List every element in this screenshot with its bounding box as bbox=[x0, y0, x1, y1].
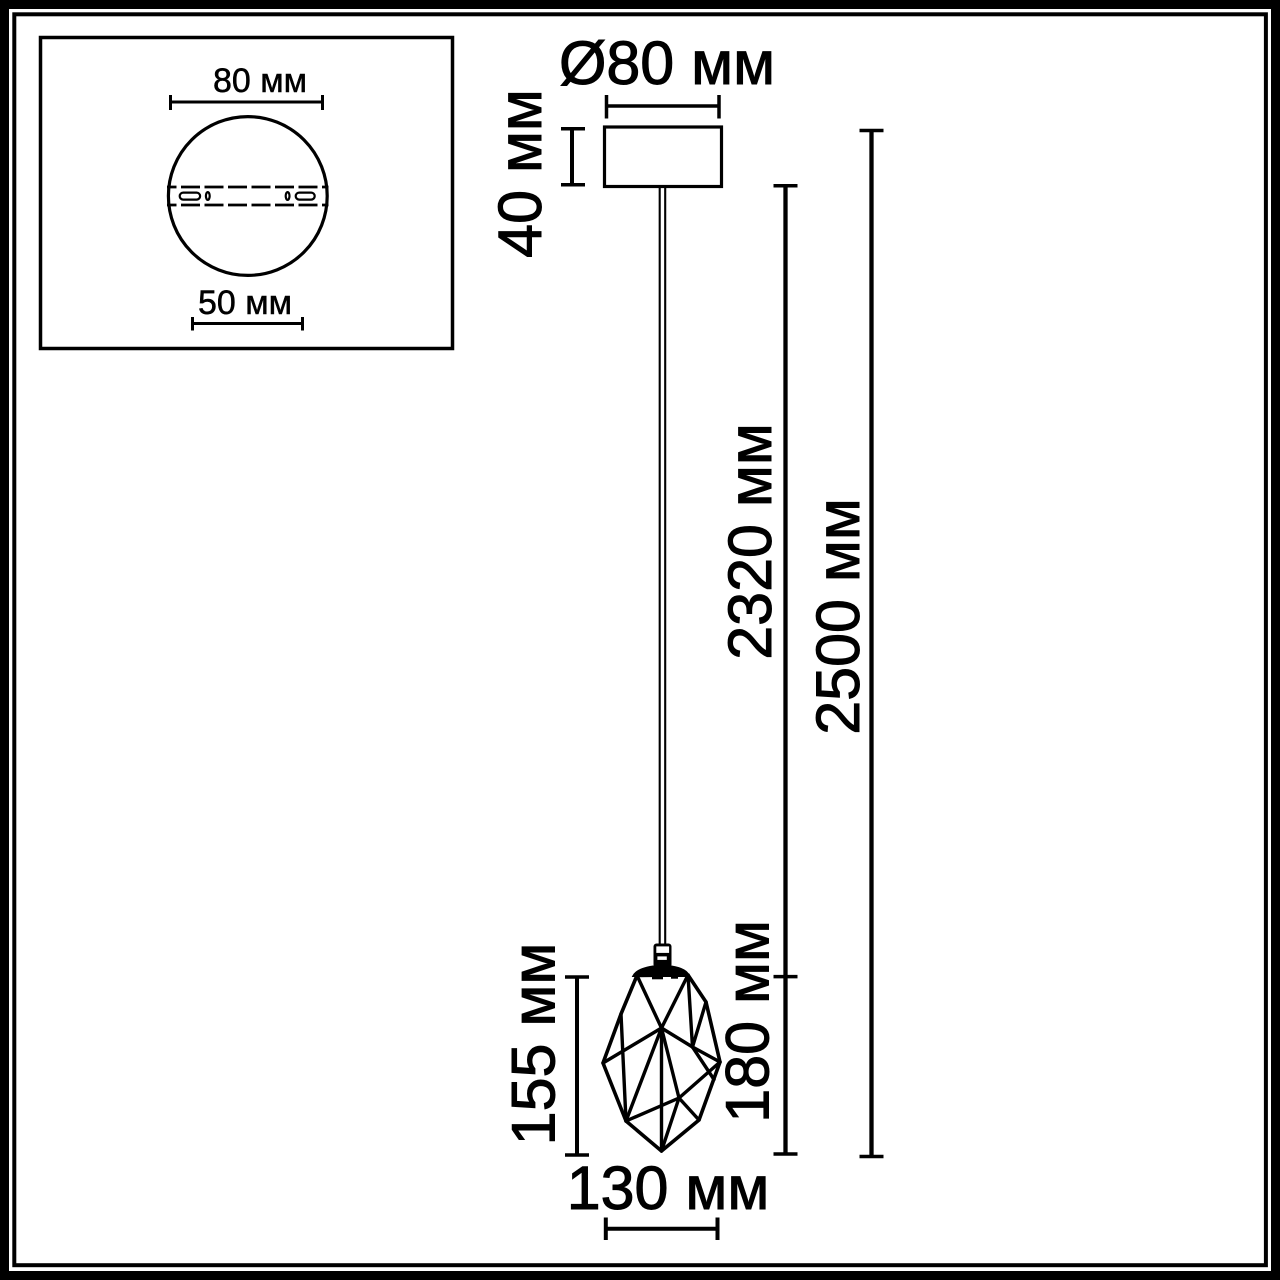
svg-text:155 мм: 155 мм bbox=[500, 943, 568, 1146]
svg-text:130 мм: 130 мм bbox=[567, 1154, 770, 1222]
svg-text:2500 мм: 2500 мм bbox=[804, 498, 872, 735]
svg-text:80 мм: 80 мм bbox=[213, 62, 307, 100]
svg-text:50 мм: 50 мм bbox=[198, 284, 292, 322]
svg-text:40 мм: 40 мм bbox=[486, 89, 554, 258]
svg-text:180 мм: 180 мм bbox=[714, 920, 782, 1123]
svg-text:2320 мм: 2320 мм bbox=[716, 423, 784, 660]
svg-text:Ø80 мм: Ø80 мм bbox=[559, 29, 775, 97]
